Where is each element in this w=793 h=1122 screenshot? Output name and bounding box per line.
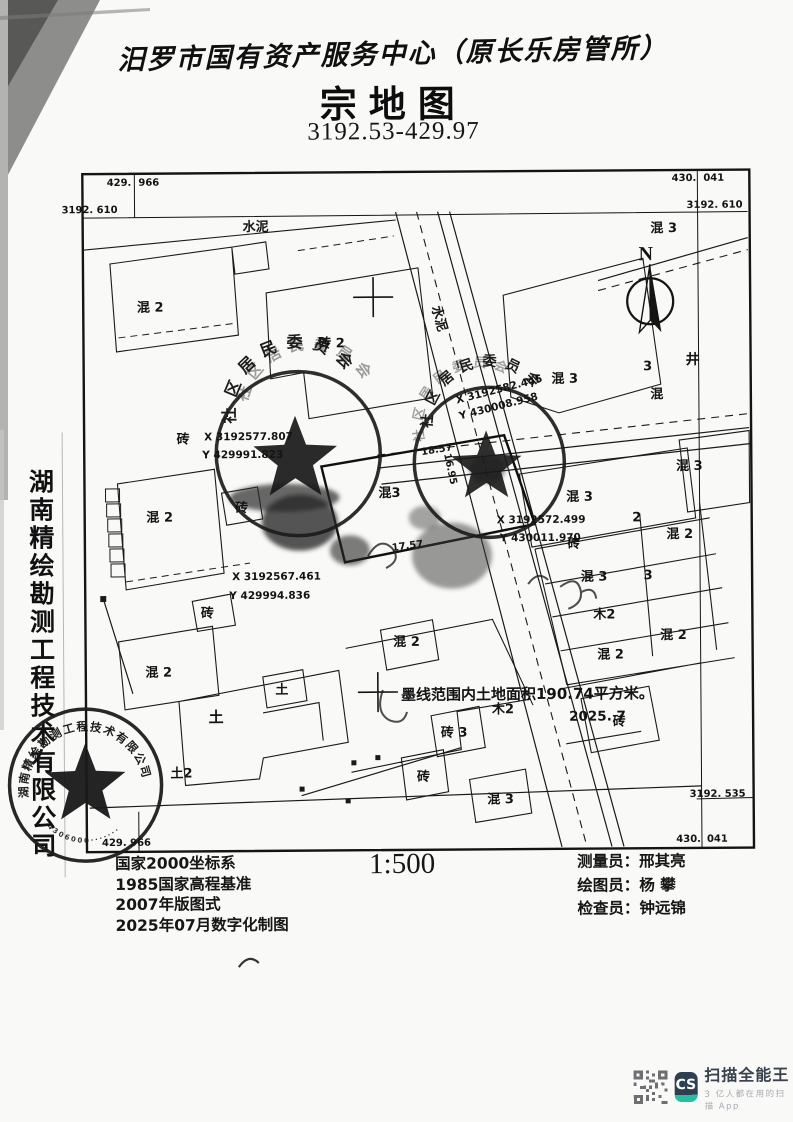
north-arrow (627, 264, 673, 332)
map-label: 木2 (592, 606, 615, 622)
map-label: 木2 (491, 701, 514, 717)
pen-mark (239, 959, 259, 967)
map-label: 砖 (417, 769, 430, 785)
map-label: 041 (703, 173, 724, 184)
map-label: 土 (275, 682, 288, 698)
map-label: 井 (686, 351, 700, 368)
map-label: 砖 (235, 500, 248, 516)
map-label: 混 2 (597, 647, 624, 662)
map-label: 混 2 (146, 511, 173, 526)
map-label: 土 (209, 708, 224, 726)
scanned-parcel-map-sheet: 汨罗市国有资产服务中心（原长乐房管所） 宗地图 3192.53-429.97 湖… (0, 0, 793, 1122)
map-label: 砖 (177, 431, 190, 447)
stamp-star (451, 430, 522, 497)
map-label: Y 429994.836 (228, 590, 310, 603)
map-label: 3192. 610 (686, 200, 742, 211)
map-label: 混 3 (650, 221, 677, 236)
map-label: 041 (707, 834, 728, 845)
map-label: 2 (632, 510, 641, 525)
map-label: 混 3 (676, 459, 703, 474)
map-label: X 3192567.461 (232, 571, 321, 584)
map-label: Y 430011.970 (499, 532, 581, 545)
map-label: 砖 2 (318, 335, 345, 351)
map-label: 水泥 (243, 219, 269, 235)
map-label: 混 3 (581, 570, 608, 585)
map-label: 430. (676, 834, 701, 845)
map-label: 混 3 (551, 372, 578, 387)
map-labels-layer: 水泥水泥混 2砖 2混 3混 33混井混 3砖混 2砖混3混 32砖混 2混 3… (61, 173, 747, 850)
sheet-content: 汨罗市国有资产服务中心（原长乐房管所） 宗地图 3192.53-429.97 湖… (0, 0, 793, 1122)
map-label: 混 2 (145, 666, 172, 681)
map-label: 墨线范围内土地面积190.74平方米。 (401, 684, 654, 704)
map-label: 混 2 (660, 628, 687, 643)
map-label: 3192. 610 (62, 205, 118, 216)
map-label: 水泥 (428, 304, 451, 333)
map-label: N (639, 243, 654, 265)
map-label: X 3192577.807 (204, 431, 293, 444)
map-label: 混3 (378, 486, 400, 501)
camscanner-tagline: 3 亿人都在用的扫描 App (704, 1087, 793, 1112)
map-label: 砖 3 (441, 725, 468, 741)
camscanner-logo: CS (674, 1072, 697, 1102)
map-label: 3 (644, 568, 653, 583)
map-label: 混 3 (566, 490, 593, 505)
camscanner-brand: 扫描全能王 (704, 1061, 793, 1086)
map-label: Y 429991.823 (201, 449, 283, 462)
hatch-marks (105, 489, 125, 577)
map-label: 砖 (201, 605, 214, 621)
map-label: X 3192572.499 (497, 514, 586, 527)
map-label: 混 2 (393, 635, 420, 650)
map-label: 混 2 (666, 527, 693, 542)
parcel-map-drawing: 社区居民委员会 社区居民委员会 社区居民委员会 社区居民委员会 (0, 0, 793, 1122)
map-label: 3192. 535 (690, 789, 746, 800)
map-label: 430. (672, 173, 697, 184)
map-label: 混 2 (137, 301, 164, 316)
map-label: 429. (107, 178, 132, 189)
map-label: 966 (138, 178, 159, 189)
map-label: 混 (650, 387, 663, 402)
qr-code (634, 1065, 668, 1109)
map-label: 429. 966 (102, 838, 151, 849)
map-label: 土2 (170, 765, 192, 781)
map-label: 3 (643, 359, 652, 374)
map-label: 混 3 (487, 792, 514, 807)
camscanner-watermark: CS 扫描全能王 3 亿人都在用的扫描 App (633, 1059, 793, 1114)
map-label: 2025. 7 (569, 708, 626, 724)
